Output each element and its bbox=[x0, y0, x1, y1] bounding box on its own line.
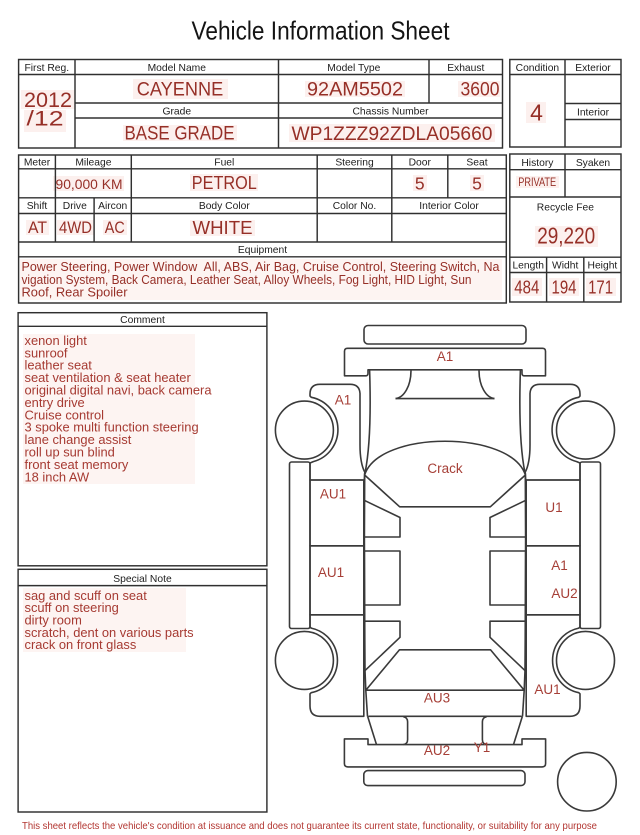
svg-text:AU1: AU1 bbox=[534, 682, 560, 697]
svg-text:First Reg.: First Reg. bbox=[24, 63, 69, 74]
svg-text:AT: AT bbox=[28, 219, 47, 237]
svg-text:4: 4 bbox=[530, 100, 543, 126]
svg-text:194: 194 bbox=[552, 278, 577, 298]
svg-text:92AM5502: 92AM5502 bbox=[307, 78, 403, 100]
svg-text:CAYENNE: CAYENNE bbox=[137, 80, 224, 101]
svg-text:Drive: Drive bbox=[63, 201, 87, 212]
svg-text:History: History bbox=[521, 158, 554, 169]
svg-text:Length: Length bbox=[512, 260, 544, 271]
svg-text:PRIVATE: PRIVATE bbox=[518, 177, 556, 189]
svg-text:Interior Color: Interior Color bbox=[419, 201, 479, 212]
svg-text:484: 484 bbox=[514, 278, 539, 298]
svg-text:Roof, Rear Spoiler: Roof, Rear Spoiler bbox=[22, 286, 128, 300]
svg-text:Color No.: Color No. bbox=[333, 201, 377, 212]
svg-text:PETROL: PETROL bbox=[192, 172, 257, 193]
svg-text:Recycle Fee: Recycle Fee bbox=[537, 203, 594, 214]
svg-text:AU1: AU1 bbox=[318, 565, 344, 580]
svg-text:Special Note: Special Note bbox=[113, 574, 172, 585]
svg-text:5: 5 bbox=[472, 174, 482, 194]
svg-text:Door: Door bbox=[409, 157, 432, 168]
svg-text:Mileage: Mileage bbox=[75, 157, 111, 168]
svg-text:5: 5 bbox=[415, 174, 425, 194]
svg-text:Steering: Steering bbox=[335, 157, 374, 168]
svg-text:Comment: Comment bbox=[120, 315, 165, 326]
svg-text:A1: A1 bbox=[437, 349, 454, 364]
svg-text:/12: /12 bbox=[27, 108, 64, 131]
svg-text:U1: U1 bbox=[545, 500, 562, 515]
svg-text:Exhaust: Exhaust bbox=[447, 63, 484, 74]
svg-text:AU1: AU1 bbox=[320, 487, 346, 502]
svg-text:crack on front glass: crack on front glass bbox=[25, 637, 137, 652]
svg-text:This sheet reflects the vehicl: This sheet reflects the vehicle's condit… bbox=[22, 820, 597, 832]
svg-text:BASE GRADE: BASE GRADE bbox=[125, 124, 235, 145]
svg-text:171: 171 bbox=[588, 278, 613, 298]
svg-text:Shift: Shift bbox=[27, 201, 48, 212]
svg-text:AU2: AU2 bbox=[424, 743, 450, 758]
svg-text:Meter: Meter bbox=[24, 157, 51, 168]
svg-text:4WD: 4WD bbox=[59, 219, 92, 237]
svg-text:Widht: Widht bbox=[552, 260, 578, 271]
svg-text:3600: 3600 bbox=[461, 79, 500, 100]
svg-text:Grade: Grade bbox=[162, 106, 191, 117]
svg-text:Syaken: Syaken bbox=[576, 158, 611, 169]
svg-text:Model Name: Model Name bbox=[148, 63, 207, 74]
svg-text:Height: Height bbox=[588, 260, 618, 271]
svg-text:Model Type: Model Type bbox=[327, 63, 380, 74]
svg-text:Condition: Condition bbox=[516, 63, 560, 74]
svg-text:Aircon: Aircon bbox=[98, 201, 127, 212]
svg-text:Y1: Y1 bbox=[474, 740, 491, 755]
svg-text:Crack: Crack bbox=[427, 461, 463, 476]
svg-text:Fuel: Fuel bbox=[214, 157, 234, 168]
svg-text:Exterior: Exterior bbox=[575, 63, 611, 74]
svg-text:Interior: Interior bbox=[577, 107, 610, 118]
svg-text:AU2: AU2 bbox=[551, 586, 577, 601]
svg-text:29,220: 29,220 bbox=[537, 223, 595, 249]
svg-text:Seat: Seat bbox=[466, 157, 487, 168]
svg-text:A1: A1 bbox=[335, 393, 352, 408]
svg-text:Power Steering, Power Window: Power Steering, Power Window All, ABS, A… bbox=[22, 260, 500, 274]
svg-text:Vehicle Information Sheet: Vehicle Information Sheet bbox=[192, 16, 451, 46]
svg-text:90,000 KM: 90,000 KM bbox=[56, 176, 123, 192]
svg-text:WHITE: WHITE bbox=[193, 217, 253, 238]
svg-text:A1: A1 bbox=[551, 558, 568, 573]
svg-text:AC: AC bbox=[105, 219, 125, 237]
svg-text:Body Color: Body Color bbox=[199, 201, 251, 212]
svg-text:WP1ZZZ92ZDLA05660: WP1ZZZ92ZDLA05660 bbox=[292, 123, 493, 145]
svg-text:Equipment: Equipment bbox=[238, 245, 287, 256]
svg-text:AU3: AU3 bbox=[424, 691, 450, 706]
svg-text:Chassis Number: Chassis Number bbox=[352, 106, 429, 117]
svg-text:18 inch AW: 18 inch AW bbox=[25, 469, 91, 484]
